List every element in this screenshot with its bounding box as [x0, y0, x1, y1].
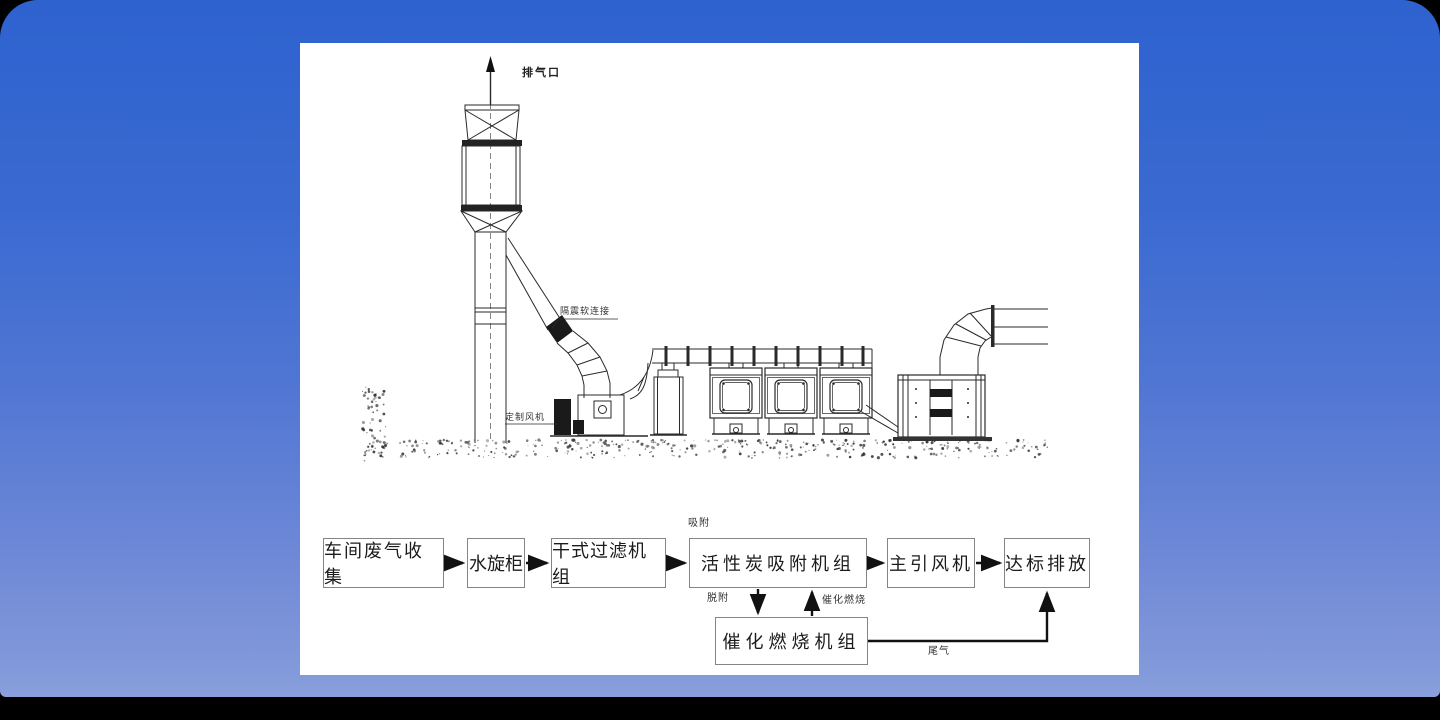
desorb-annotation: 脱附 [707, 594, 729, 604]
stack-muffler-drum [461, 146, 522, 211]
tail-gas-annotation: 尾气 [928, 647, 950, 657]
stack-lower-truss [461, 211, 522, 232]
vertical-tank [650, 363, 687, 435]
carbon-unit-c [820, 363, 872, 434]
stack-top-cap [462, 105, 522, 146]
vibration-connector-label: 隔震软连接 [560, 307, 610, 316]
catalytic-burn-annotation: 催化燃烧 [822, 596, 866, 606]
sloped-duct [506, 238, 561, 330]
flow-box-main-fan: 主引风机 [887, 538, 975, 588]
exhaust-arrow [486, 56, 495, 105]
ground-texture [361, 387, 1048, 462]
flow-box-workshop-gas-collection: 车间废气收集 [323, 538, 444, 588]
flow-box-catalytic-combustion-unit: 催化燃烧机组 [715, 617, 868, 665]
adsorb-annotation: 吸附 [688, 519, 710, 529]
carbon-unit-a [710, 363, 762, 434]
diagram-panel: 排气口 隔震软连接 定制风机 车间废气收集 水旋柜 干式过滤机组 活性炭吸附机组… [300, 43, 1139, 675]
flow-box-compliant-discharge: 达标排放 [1004, 538, 1090, 588]
elbow-to-fan [557, 331, 610, 398]
carbon-unit-b [765, 363, 817, 434]
custom-fan-label: 定制风机 [505, 413, 545, 422]
flow-box-activated-carbon-unit: 活性炭吸附机组 [689, 538, 867, 588]
flow-box-dry-filter-unit: 干式过滤机组 [551, 538, 666, 588]
right-unit [893, 375, 992, 441]
exhaust-outlet-label: 排气口 [522, 68, 561, 79]
elbow-fan-to-manifold [620, 350, 653, 399]
flow-box-water-spray-cabinet: 水旋柜 [467, 538, 525, 588]
right-elbow-duct [940, 305, 1048, 375]
diagonal-chute [860, 405, 898, 433]
